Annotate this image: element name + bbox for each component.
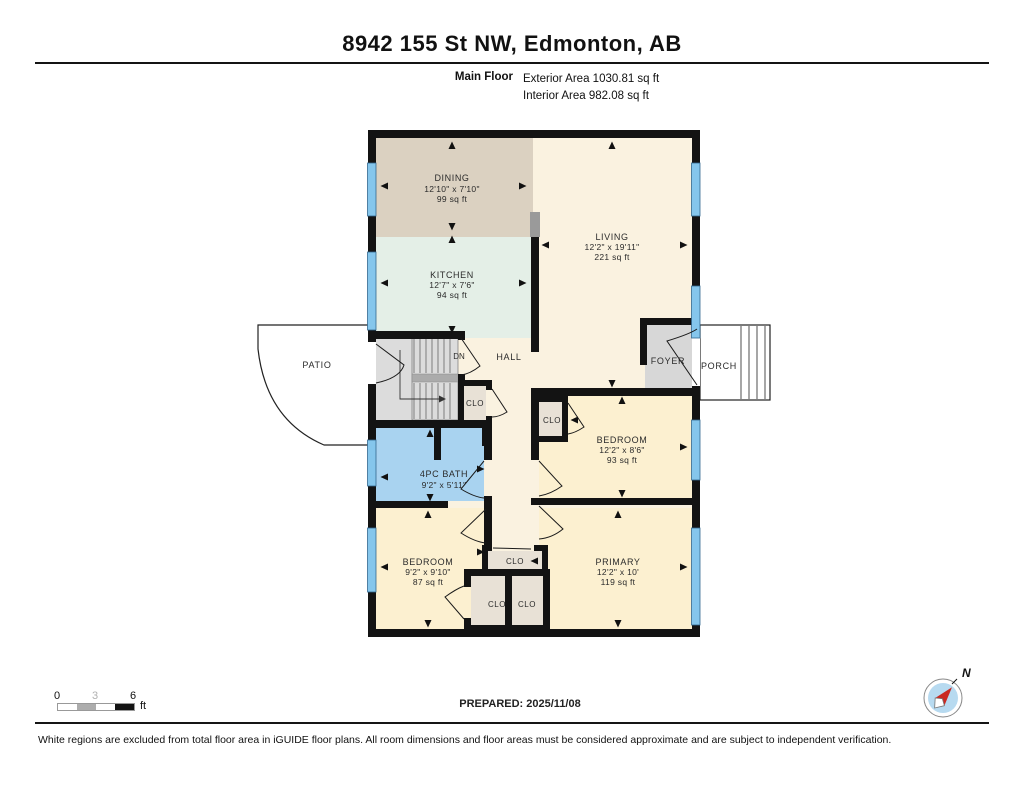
closet-label: CLO bbox=[518, 600, 536, 609]
dining-dims: 12'10" x 7'10" bbox=[424, 184, 480, 194]
living-dims: 12'2" x 19'11" bbox=[585, 242, 640, 252]
stairs-dn-label: DN bbox=[453, 352, 465, 361]
window bbox=[692, 528, 701, 625]
living-area: 221 sq ft bbox=[594, 252, 630, 262]
living-label: LIVING bbox=[595, 232, 628, 242]
bedroom2-area: 93 sq ft bbox=[607, 455, 638, 465]
bedroom3-area: 87 sq ft bbox=[413, 577, 444, 587]
window bbox=[368, 252, 377, 330]
kitchen-label: KITCHEN bbox=[430, 270, 474, 280]
compass-north-label: N bbox=[962, 666, 971, 680]
window bbox=[692, 420, 701, 480]
hall-label: HALL bbox=[496, 352, 521, 362]
patio-outline bbox=[258, 325, 368, 445]
bath-dims: 9'2" x 5'11" bbox=[422, 480, 467, 490]
chimney-stub bbox=[530, 212, 540, 237]
bedroom2-dims: 12'2" x 8'6" bbox=[599, 445, 645, 455]
porch-label: PORCH bbox=[701, 361, 737, 371]
bath-label: 4PC BATH bbox=[420, 469, 468, 479]
dining-area: 99 sq ft bbox=[437, 194, 468, 204]
kitchen-dims: 12'7" x 7'6" bbox=[429, 280, 475, 290]
disclaimer-text: White regions are excluded from total fl… bbox=[38, 734, 988, 746]
prepared-date: PREPARED: 2025/11/08 bbox=[0, 698, 1024, 710]
primary-dims: 12'2" x 10' bbox=[597, 567, 639, 577]
patio-door-opening bbox=[368, 342, 376, 384]
floor-plan-page: 8942 155 St NW, Edmonton, AB Main Floor … bbox=[0, 0, 1024, 791]
window bbox=[368, 528, 377, 592]
foyer-label: FOYER bbox=[651, 356, 686, 366]
room-floors bbox=[376, 138, 692, 629]
bedroom3-label: BEDROOM bbox=[403, 557, 454, 567]
closet-label: CLO bbox=[488, 600, 506, 609]
patio-label: PATIO bbox=[302, 360, 331, 370]
floorplan-drawing: DINING 12'10" x 7'10" 99 sq ft KITCHEN 1… bbox=[0, 0, 1024, 791]
bedroom3-dims: 9'2" x 9'10" bbox=[405, 567, 451, 577]
dining-label: DINING bbox=[434, 173, 469, 183]
primary-label: PRIMARY bbox=[595, 557, 640, 567]
closet-label: CLO bbox=[466, 399, 484, 408]
closet-label: CLO bbox=[506, 557, 524, 566]
bedroom2-label: BEDROOM bbox=[597, 435, 648, 445]
footer-divider bbox=[35, 722, 989, 724]
kitchen-area: 94 sq ft bbox=[437, 290, 468, 300]
compass-icon: N bbox=[916, 662, 980, 726]
window bbox=[692, 163, 701, 216]
window bbox=[368, 440, 377, 486]
closet-label: CLO bbox=[543, 416, 561, 425]
primary-area: 119 sq ft bbox=[601, 577, 636, 587]
window bbox=[368, 163, 377, 216]
